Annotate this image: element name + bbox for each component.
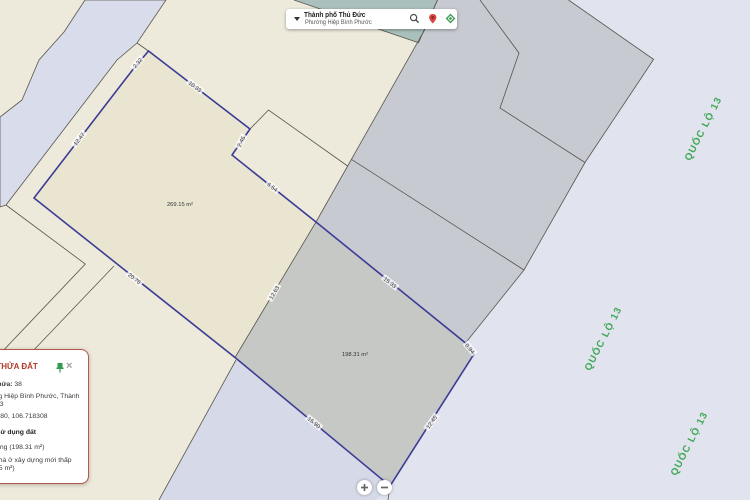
svg-text:198.31 m²: 198.31 m² [342, 352, 368, 358]
svg-text:269.15 m²: 269.15 m² [167, 202, 193, 208]
